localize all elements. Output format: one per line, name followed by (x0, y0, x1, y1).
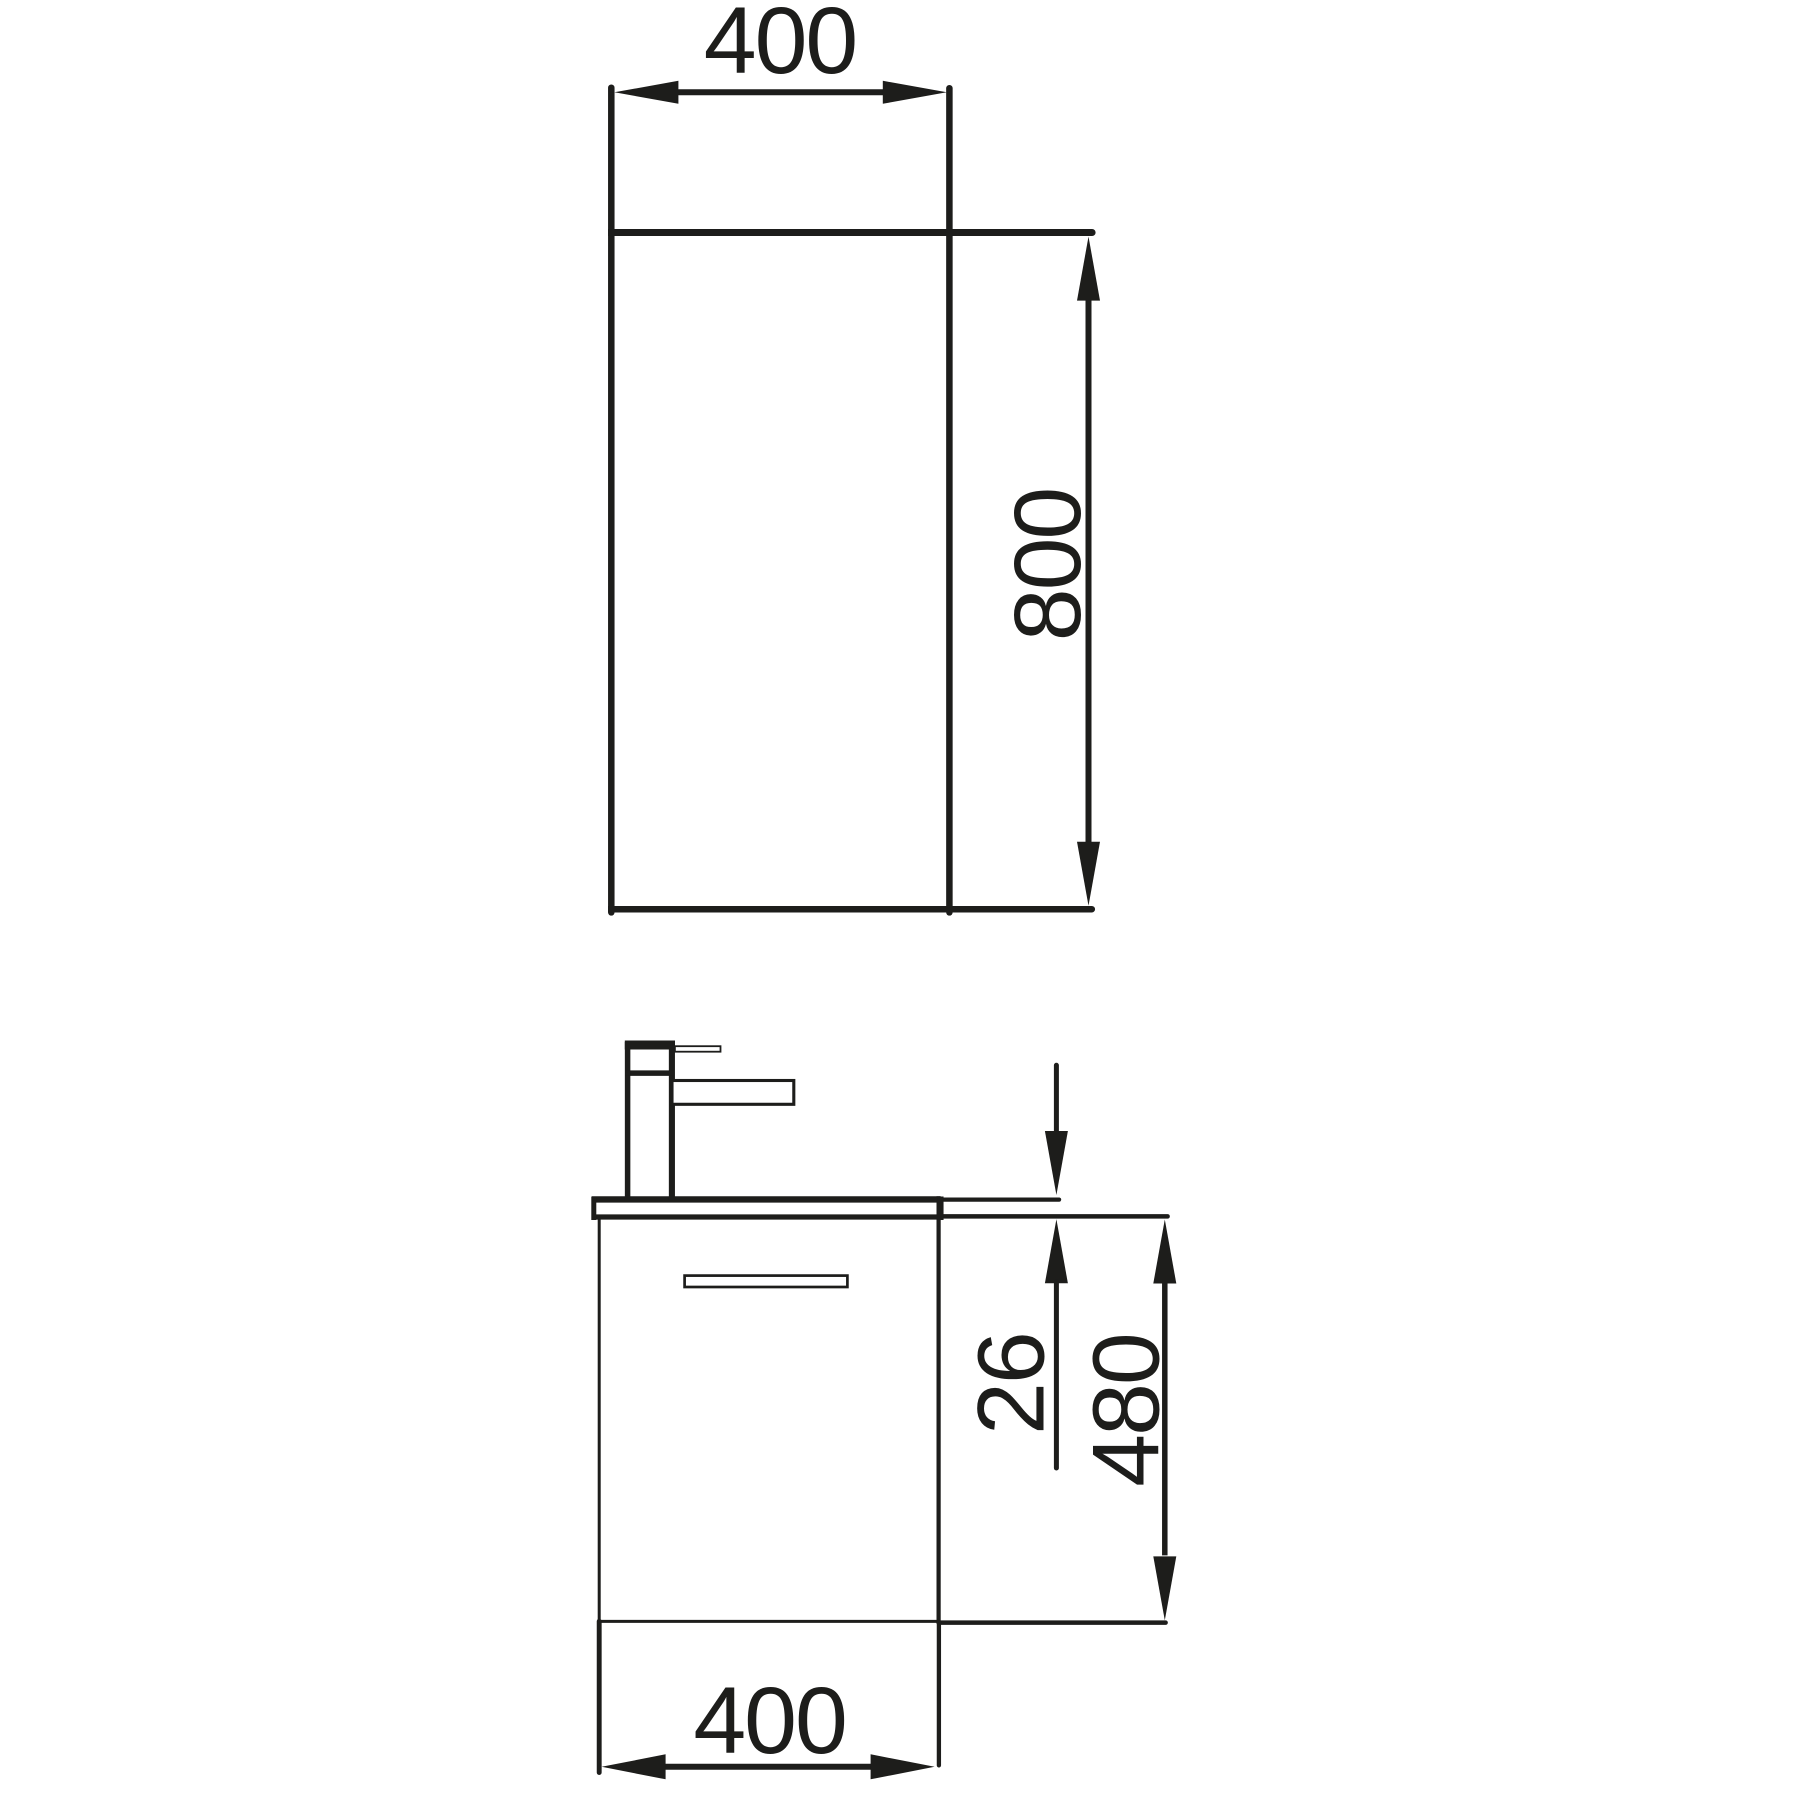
svg-text:800: 800 (995, 489, 1101, 642)
svg-text:400: 400 (704, 0, 857, 94)
svg-text:480: 480 (1073, 1334, 1179, 1487)
svg-text:400: 400 (693, 1668, 846, 1774)
svg-text:26: 26 (959, 1333, 1065, 1435)
